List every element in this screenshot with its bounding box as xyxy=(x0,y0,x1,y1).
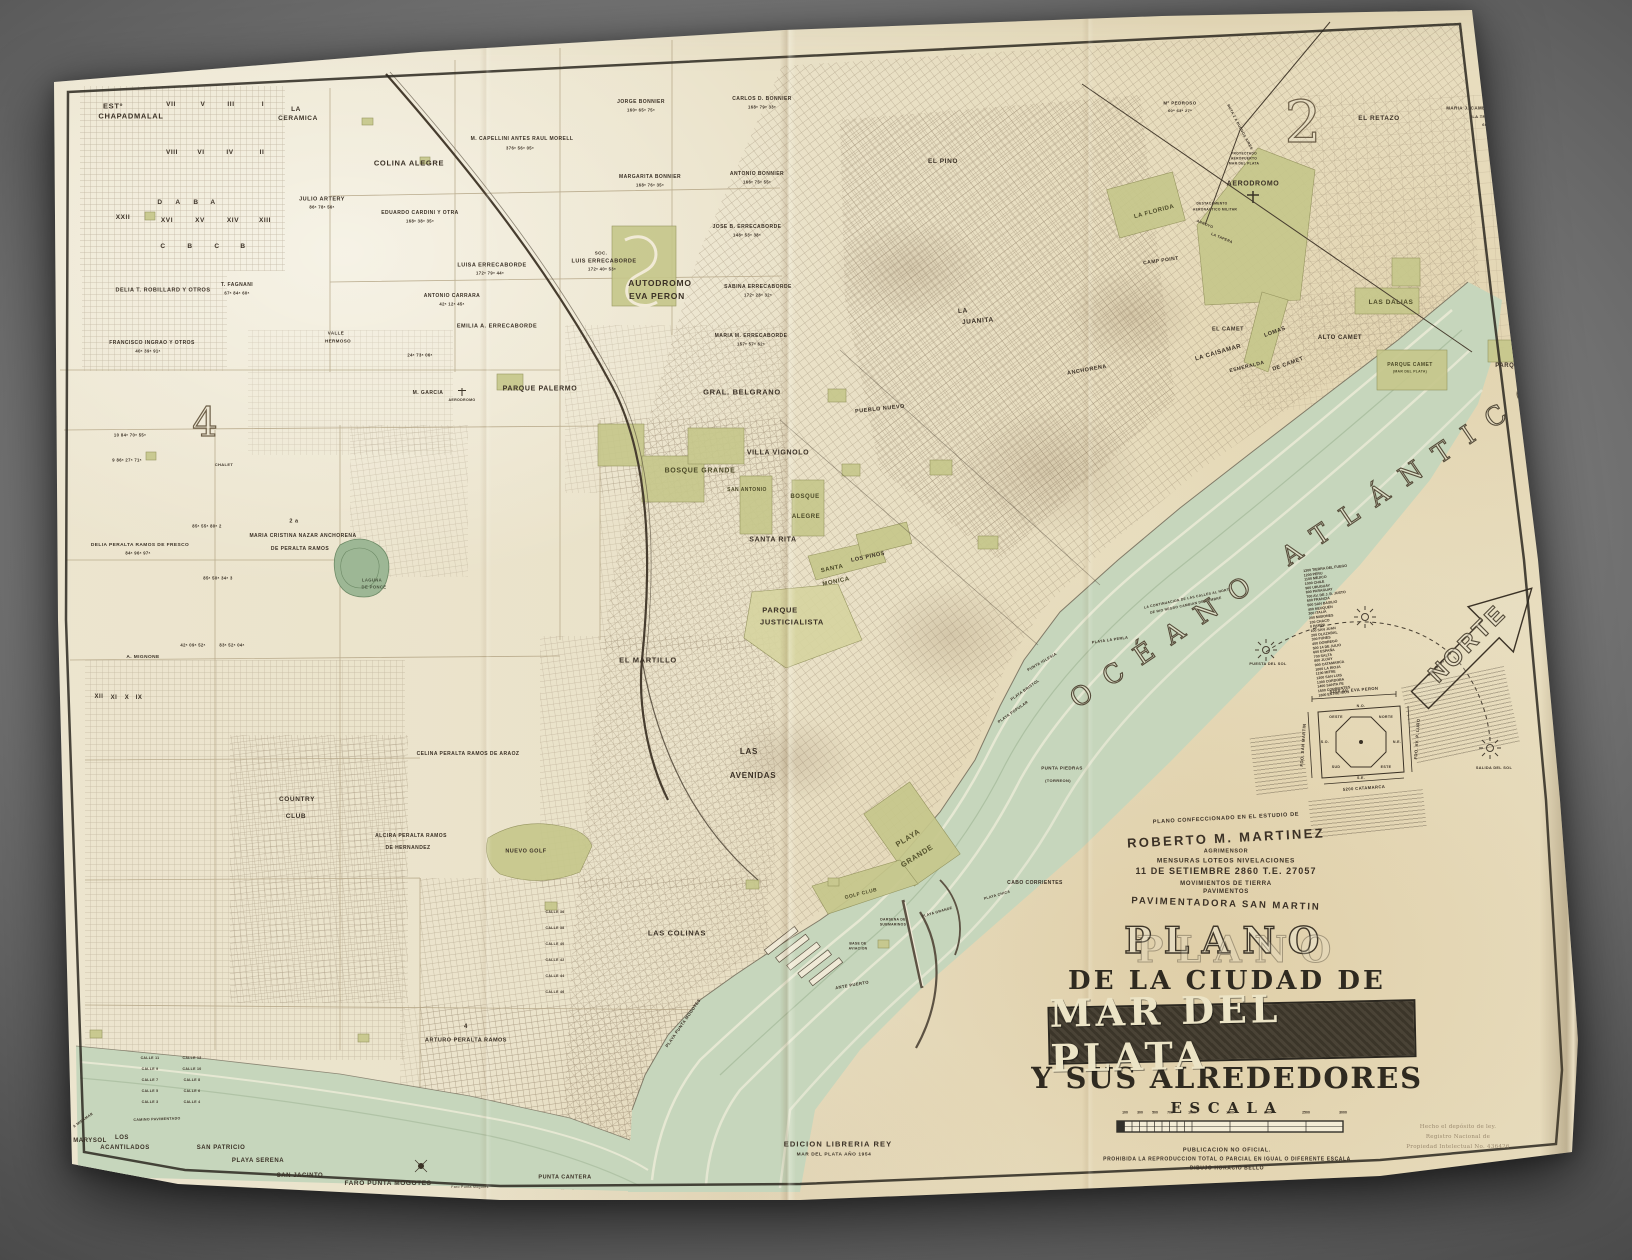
scale-tick-label: 2500 xyxy=(1302,1111,1310,1115)
cartouche-line: PLANO CONFECCIONADO EN EL ESTUDIO DE xyxy=(1153,811,1300,825)
publication-line: PROHIBIDA LA REPRODUCCION TOTAL O PARCIA… xyxy=(1103,1156,1351,1162)
map-sheet: ESTºCHAPADMALALVIIVIIIIVIIIVIIVIIDABAXVI… xyxy=(0,0,1632,1260)
publication-line: DIBUJO HORACIO BELLO xyxy=(1190,1165,1264,1171)
scale-tick-label: 1500 xyxy=(1226,1111,1234,1115)
cartouche-line: MENSURAS LOTEOS NIVELACIONES xyxy=(1157,856,1295,864)
publication-line: PUBLICACION NO OFICIAL. xyxy=(1183,1147,1271,1153)
scale-tick-label: 2000 xyxy=(1264,1111,1272,1115)
edition-line: MAR DEL PLATA AÑO 1954 xyxy=(797,1151,872,1157)
cartouche-author: ROBERTO M. MARTINEZ xyxy=(1127,825,1326,850)
cartouche-company: PAVIMENTADORA SAN MARTIN xyxy=(1131,895,1321,913)
title-city-text: MAR DEL PLATA xyxy=(1049,983,1415,1081)
edition-line: EDICION LIBRERIA REY xyxy=(784,1140,892,1149)
scale-tick-label: 3000 xyxy=(1339,1111,1347,1115)
scale-tick-label: 500 xyxy=(1152,1111,1158,1115)
scale-tick-label: 300 xyxy=(1137,1111,1143,1115)
title-city-band: MAR DEL PLATA xyxy=(1047,999,1416,1065)
deposit-line: Registro Nacional de xyxy=(1426,1133,1490,1140)
map-sheet-wrapper: ESTºCHAPADMALALVIIVIIIIVIIIVIIVIIDABAXVI… xyxy=(0,0,1632,1260)
cartouche-line: AGRIMENSOR xyxy=(1204,848,1248,854)
photo-of-map: ESTºCHAPADMALALVIIVIIIIVIIIVIIVIIDABAXVI… xyxy=(0,0,1632,1260)
title-plano: PLANO PLANO xyxy=(1124,920,1332,962)
title-plano-ghost: PLANO xyxy=(1136,929,1344,971)
scale-tick-label: 1000 xyxy=(1188,1111,1196,1115)
scale-tick-labels: 10030050070010001500200025003000 xyxy=(1117,1109,1343,1117)
deposit-line: Hecho el depósito de ley. xyxy=(1420,1123,1497,1130)
cartouche-line: MOVIMIENTOS DE TIERRA xyxy=(1180,880,1272,887)
title-block: PLANO CONFECCIONADO EN EL ESTUDIO DE ROB… xyxy=(0,0,1632,1260)
cartouche-line: PAVIMENTOS xyxy=(1203,888,1249,895)
cartouche-address: 11 DE SETIEMBRE 2860 T.E. 27057 xyxy=(1135,866,1316,876)
scale-tick-label: 100 xyxy=(1122,1111,1128,1115)
scale-tick-label: 700 xyxy=(1167,1111,1173,1115)
deposit-line: Propiedad Intelectual No. 436426 xyxy=(1406,1143,1509,1150)
